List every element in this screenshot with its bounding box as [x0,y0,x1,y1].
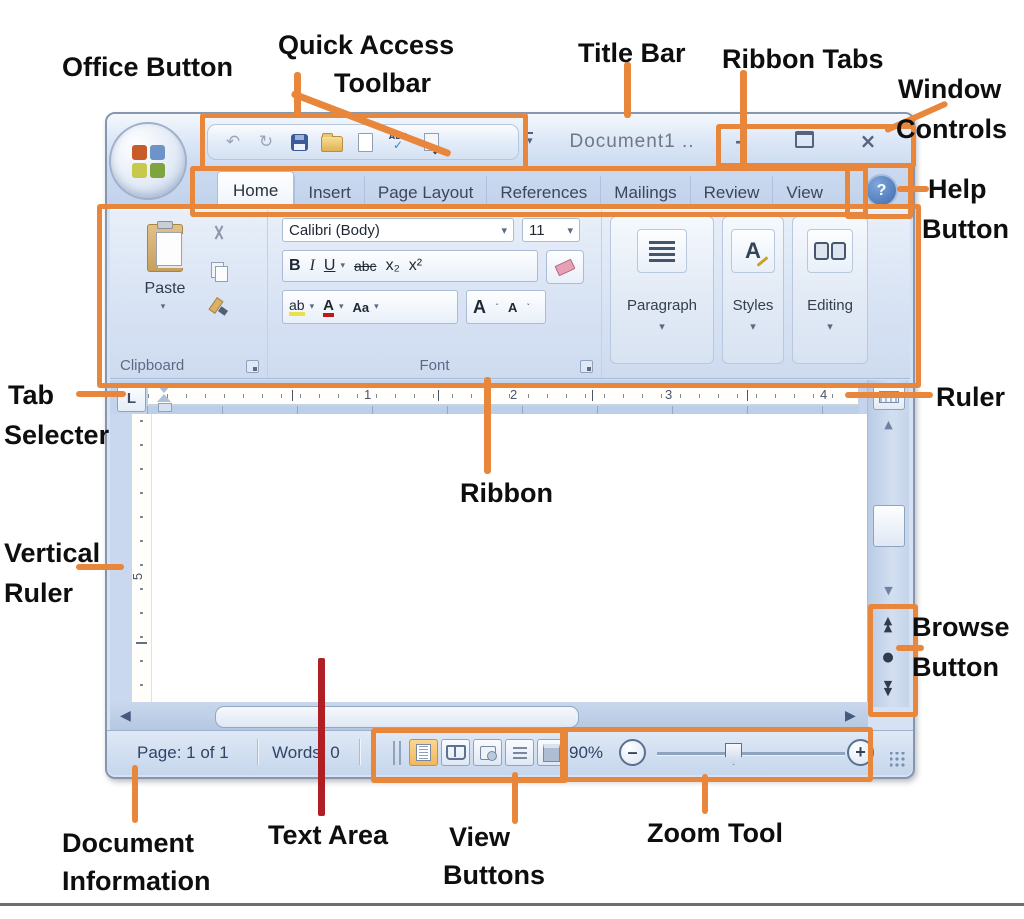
spelling-check-mark: ✓ [393,139,403,151]
ribbon-label: Ribbon [460,478,553,509]
styles-icon: A [745,238,761,264]
styles-button[interactable]: A [731,229,775,273]
customize-qat-button[interactable]: ▾ [527,132,533,147]
ribbon-tabs-pointer [740,70,747,170]
tab-selector-button[interactable]: L [117,384,146,412]
close-button[interactable]: × [853,130,883,152]
shrink-font-button[interactable]: A [508,301,517,314]
editing-dropdown-icon[interactable]: ▾ [827,320,833,333]
grow-font-caret: ˆ [495,303,499,312]
help-button-label-line2: Button [922,214,1009,245]
window-controls-label-line1: Window [898,74,1001,105]
vertical-ruler-label-line2: Ruler [4,578,73,609]
scroll-left-arrow[interactable]: ◀ [120,708,131,724]
font-name-value: Calibri (Body) [289,222,380,239]
fullscreen-reading-view-button[interactable] [441,739,470,766]
paragraph-dropdown-icon[interactable]: ▾ [659,320,665,333]
tab-mailings[interactable]: Mailings [600,176,689,209]
italic-button[interactable]: I [310,258,315,274]
paste-dropdown-arrow[interactable]: ▾ [161,302,166,312]
underline-dropdown-icon[interactable]: ▾ [340,261,345,271]
left-gutter [110,414,132,702]
office-button-label: Office Button [62,52,233,83]
horizontal-scroll-thumb[interactable] [215,706,579,728]
ribbon: Paste ▾ Clipboard Calibri (Body) ▾ [110,209,910,379]
vertical-ruler-dash [136,642,147,644]
font-size-combo[interactable]: 11 ▾ [522,218,580,242]
paste-label: Paste [145,280,186,298]
zoom-slider-thumb[interactable] [725,743,742,765]
vertical-ruler-number: 5 [130,573,145,580]
text-area[interactable] [152,414,867,702]
ruler-label: Ruler [936,382,1005,413]
superscript-button[interactable]: x² [409,258,422,274]
zoom-slider-track[interactable] [657,752,845,755]
web-layout-icon [480,746,496,760]
document-information-label-line1: Document [62,828,194,859]
clipboard-group: Paste ▾ Clipboard [110,210,268,378]
view-buttons-label-line2: Buttons [443,860,545,891]
font-size-dropdown-icon: ▾ [567,224,573,237]
draft-view-button[interactable] [537,739,566,766]
view-buttons [393,739,566,766]
tab-selecter-label-line1: Tab [8,380,54,411]
paragraph-lines-icon [649,241,675,262]
font-color-dropdown-icon[interactable]: ▾ [339,302,344,312]
paragraph-group[interactable]: Paragraph ▾ [610,216,714,364]
paragraph-label: Paragraph [627,297,697,314]
tab-view[interactable]: View [772,176,836,209]
text-area-label: Text Area [268,820,388,851]
book-icon [446,745,466,760]
previous-page-button[interactable]: ▲▲ [872,612,904,638]
scroll-up-arrow[interactable]: ▲ [868,418,909,431]
status-bar: Page: 1 of 1 Words: 0 90% – + [107,730,913,775]
underline-button[interactable]: U [324,258,336,274]
ribbon-tabs-label: Ribbon Tabs [722,44,884,75]
zoom-level[interactable]: 90% [569,743,603,763]
clipboard-dialog-launcher[interactable] [246,360,259,373]
window-title: Document1 .. [539,131,725,153]
clipboard-small-buttons [208,224,230,318]
format-painter-icon[interactable] [208,296,230,318]
browse-button-pointer [896,645,924,651]
shrink-font-caret: ˇ [526,303,530,312]
highlight-dropdown-icon[interactable]: ▾ [310,302,315,312]
draft-icon [543,744,560,762]
office-button[interactable] [109,122,187,200]
ruler-subband [147,406,859,414]
bold-button[interactable]: B [289,258,301,274]
clipboard-group-label: Clipboard [110,357,267,374]
outline-view-button[interactable] [505,739,534,766]
tab-page-layout[interactable]: Page Layout [364,176,486,209]
copy-icon[interactable] [208,260,230,282]
change-case-button[interactable]: Aa [352,301,369,314]
vertical-scroll-thumb[interactable] [873,505,905,547]
subscript-button[interactable]: x₂ [386,258,400,274]
font-size-value: 11 [529,222,545,239]
quick-access-label-line2: Toolbar [334,68,431,99]
view-buttons-grip [393,741,401,765]
quick-access-toolbar: ↶ ↻ ABC ✓ [207,124,519,160]
quick-access-pointer [294,72,301,117]
styles-label: Styles [733,297,774,314]
horizontal-ruler[interactable]: 1 2 3 4 [147,385,859,405]
font-group: Calibri (Body) ▾ 11 ▾ B I U ▾ abc x₂ x² [268,210,602,378]
word-count[interactable]: Words: 0 [272,743,340,763]
word-window: ↶ ↻ ABC ✓ ▾ Document1 .. – × Home Insert… [105,112,915,779]
document-information-pointer [132,765,138,823]
ruler-number-1: 1 [364,387,371,402]
font-name-dropdown-icon: ▾ [501,224,507,237]
new-document-icon[interactable] [354,131,376,153]
web-layout-view-button[interactable] [473,739,502,766]
paragraph-button[interactable] [637,229,687,273]
window-controls: – × [725,130,883,152]
ruler-ticks [148,394,858,398]
ruler-number-4: 4 [820,387,827,402]
font-group-label: Font [268,357,601,374]
ribbon-tab-row: Home Insert Page Layout References Maili… [107,167,913,209]
font-color-button[interactable]: A [323,298,334,317]
tab-home[interactable]: Home [217,171,294,209]
view-buttons-label-line1: View [449,822,510,853]
quick-access-label-line1: Quick Access [278,30,454,61]
help-button-label-line1: Help [928,174,987,205]
resize-grip[interactable] [890,752,906,768]
ruler-number-3: 3 [665,387,672,402]
tab-selecter-label-line2: Selecter [4,420,109,451]
font-dialog-launcher[interactable] [580,360,593,373]
restore-button[interactable] [789,130,819,152]
window-controls-label-line2: Controls [896,114,1007,145]
tab-references[interactable]: References [486,176,600,209]
undo-icon[interactable]: ↶ [222,131,244,153]
annotated-word-diagram: ↶ ↻ ABC ✓ ▾ Document1 .. – × Home Insert… [0,0,1024,919]
browse-button-label-line1: Browse [912,612,1010,643]
editing-label: Editing [807,297,853,314]
office-logo-icon [132,145,165,178]
title-bar-label: Title Bar [578,38,686,69]
restore-icon [795,131,814,148]
tab-insert[interactable]: Insert [294,176,364,209]
eraser-icon [555,258,576,276]
cut-icon[interactable] [208,224,230,246]
zoom-in-button[interactable]: + [847,739,874,766]
outline-icon [513,747,527,759]
redo-icon[interactable]: ↻ [255,131,277,153]
page-indicator[interactable]: Page: 1 of 1 [137,743,229,763]
ruler-pointer [845,392,933,398]
tab-selecter-pointer [76,391,126,397]
horizontal-scrollbar[interactable]: ◀ ▶ [110,702,868,730]
ruler-number-2: 2 [510,387,517,402]
print-layout-icon [416,744,431,761]
open-icon[interactable] [321,131,343,153]
print-layout-view-button[interactable] [409,739,438,766]
styles-dropdown-icon[interactable]: ▾ [750,320,756,333]
editing-group[interactable]: Editing ▾ [792,216,868,364]
save-icon[interactable] [288,131,310,153]
document-information-label-line2: Information [62,866,211,897]
editing-button[interactable] [807,229,853,273]
font-name-combo[interactable]: Calibri (Body) ▾ [282,218,514,242]
text-area-pointer [318,658,325,816]
clear-formatting-button[interactable] [546,250,584,284]
strikethrough-button[interactable]: abc [354,259,377,273]
title-bar-pointer [624,62,631,118]
help-button-pointer [897,186,929,192]
ribbon-pointer [484,377,491,474]
help-button[interactable]: ? [865,174,898,207]
next-page-button[interactable]: ▼▼ [872,676,904,702]
tab-review[interactable]: Review [690,176,773,209]
binoculars-icon [814,242,846,260]
browse-button-label-line2: Button [912,652,999,683]
font-style-buttons: B I U ▾ abc x₂ x² [282,250,538,282]
styles-group[interactable]: A Styles ▾ [722,216,784,364]
vertical-scrollbar[interactable]: ▲ ▼ ▲▲ ● ▼▼ [867,380,909,707]
highlight-button[interactable]: ab [289,298,305,316]
scroll-right-arrow[interactable]: ▶ [845,708,856,724]
scroll-down-arrow[interactable]: ▼ [868,584,909,597]
font-size-buttons: Aˆ Aˇ [466,290,546,324]
font-color-buttons: ab ▾ A ▾ Aa ▾ [282,290,458,324]
change-case-dropdown-icon[interactable]: ▾ [374,302,379,312]
zoom-out-button[interactable]: – [619,739,646,766]
vertical-ruler-label-line1: Vertical [4,538,100,569]
vertical-ruler[interactable]: 5 [132,414,152,702]
paste-clipboard-icon [147,224,183,272]
zoom-tool-pointer [702,774,708,814]
bottom-divider-line [0,903,1024,906]
paste-button[interactable]: Paste ▾ [134,220,196,332]
view-buttons-pointer [512,772,518,824]
vertical-ruler-ticks [140,420,143,696]
grow-font-button[interactable]: A [473,298,486,316]
indent-markers[interactable] [157,385,172,412]
zoom-tool-label: Zoom Tool [647,818,783,849]
